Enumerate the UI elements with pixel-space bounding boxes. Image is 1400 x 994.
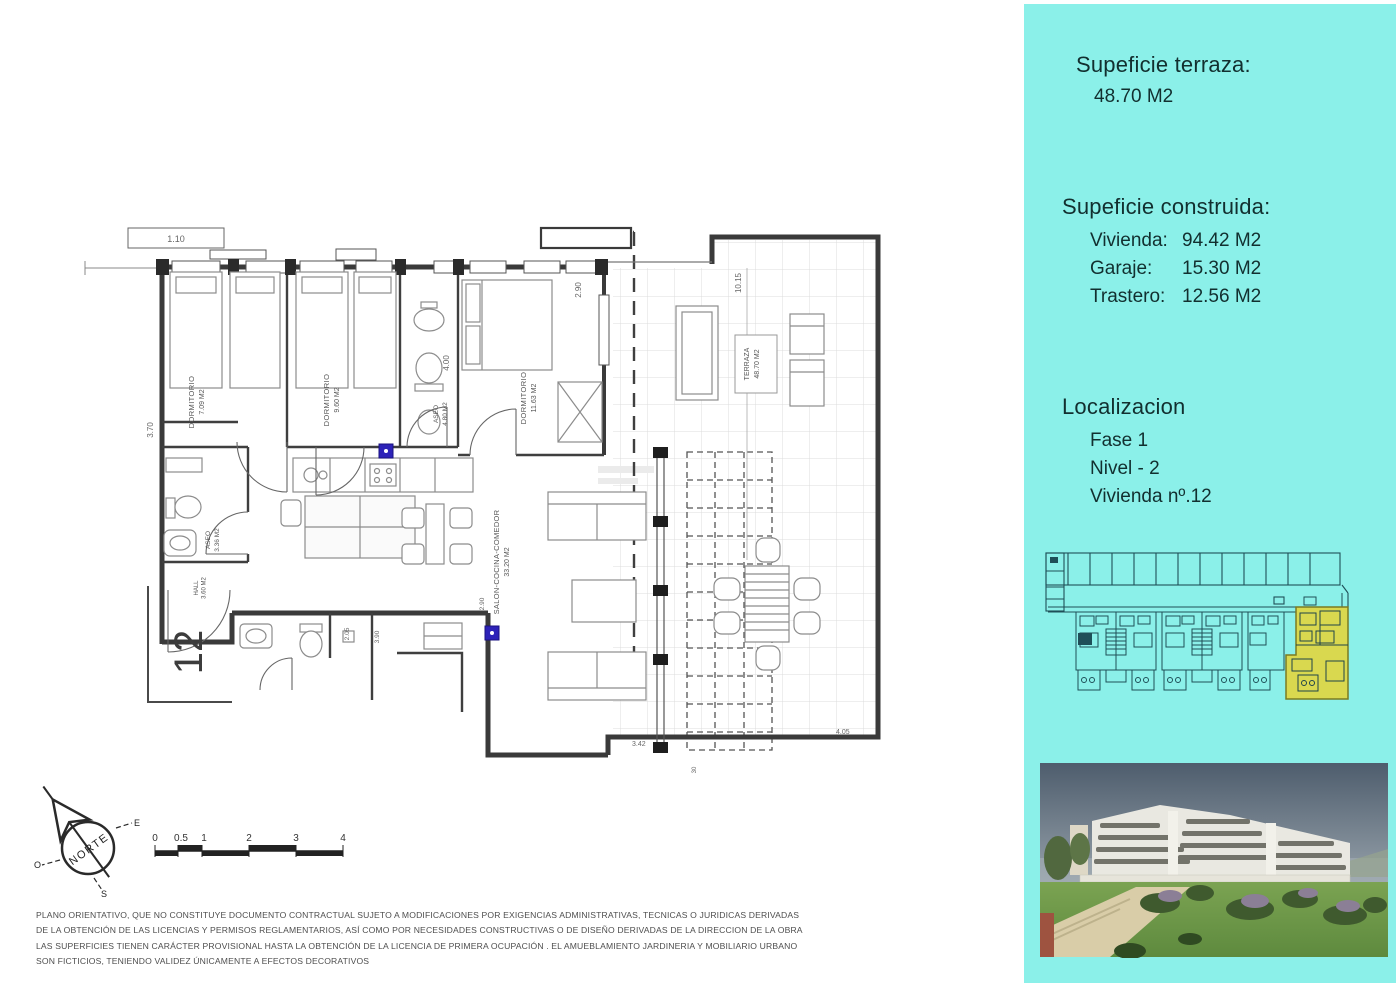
built-label: Trastero: [1090, 286, 1182, 308]
svg-text:SALON-COCINA-COMEDOR: SALON-COCINA-COMEDOR [492, 509, 501, 614]
svg-text:11.63 M2: 11.63 M2 [531, 384, 538, 413]
room-label-salon: SALON-COCINA-COMEDOR 33.20 M2 [492, 509, 511, 614]
scale-tick-3: 3 [293, 833, 299, 844]
compass-east-label: E [134, 818, 140, 828]
photo-planter [1040, 913, 1054, 957]
photo-tree [1044, 836, 1072, 880]
svg-text:DORMITORIO: DORMITORIO [187, 376, 196, 429]
location-vivienda: Vivienda nº.12 [1090, 486, 1212, 508]
built-label: Vivienda: [1090, 230, 1182, 252]
dim-left: 3.70 [146, 422, 155, 438]
dim-master: 2.90 [574, 282, 583, 298]
unit-number-label: 12 [167, 630, 211, 675]
compass-west-label: O [34, 860, 41, 870]
disclaimer-line-1: PLANO ORIENTATIVO, QUE NO CONSTITUYE DOC… [36, 908, 706, 923]
scale-tick-05: 0.5 [174, 833, 188, 844]
scale-tick-4: 4 [340, 833, 346, 844]
highlighted-unit [1286, 607, 1348, 699]
svg-text:DORMITORIO: DORMITORIO [322, 374, 331, 427]
svg-text:3.36 M2: 3.36 M2 [214, 528, 221, 552]
dim-strip-b: 3.90 [374, 630, 381, 643]
dim-tiny: 30 [692, 766, 698, 773]
room-label-bath: ASEO 4.80 M2 [433, 402, 449, 426]
svg-text:7.09 M2: 7.09 M2 [199, 389, 206, 414]
location-nivel: Nivel - 2 [1090, 458, 1160, 480]
svg-text:9.60 M2: 9.60 M2 [334, 387, 341, 412]
built-value: 94.42 M2 [1182, 230, 1261, 252]
scale-tick-2: 2 [246, 833, 252, 844]
svg-text:HALL: HALL [194, 580, 200, 596]
room-label-hall: HALL 3.60 M2 [194, 577, 208, 599]
svg-text:TERRAZA: TERRAZA [744, 347, 751, 380]
svg-text:33.20 M2: 33.20 M2 [504, 547, 511, 576]
floor-plan-drawing: 1.10 3.70 4.00 2.90 10.15 2.05 3.90 2.90… [0, 0, 1020, 989]
terrace-surface-title: Supeficie terraza: [1076, 52, 1251, 78]
built-row-vivienda: Vivienda: 94.42 M2 [1090, 230, 1261, 252]
location-title: Localizacion [1062, 394, 1185, 420]
dim-terrace-height: 10.15 [734, 272, 743, 293]
scale-bar: 0 0.5 1 2 3 4 [152, 833, 346, 857]
dim-strip-a: 2.05 [344, 627, 351, 640]
north-compass: NORTE E S O [25, 773, 140, 899]
built-surface-title: Supeficie construida: [1062, 194, 1270, 220]
disclaimer-line-3: LAS SUPERFICIES TIENEN CARÁCTER PROVISIO… [36, 939, 706, 954]
scale-tick-1: 1 [201, 833, 207, 844]
location-fase: Fase 1 [1090, 430, 1148, 452]
room-label-dormitorio-3: DORMITORIO 11.63 M2 [519, 372, 538, 425]
compass-north-label: NORTE [67, 831, 111, 868]
info-sidebar: Supeficie terraza: 48.70 M2 Supeficie co… [1024, 4, 1396, 983]
floor-plan-area: 1.10 3.70 4.00 2.90 10.15 2.05 3.90 2.90… [0, 0, 1020, 989]
disclaimer-text: PLANO ORIENTATIVO, QUE NO CONSTITUYE DOC… [36, 908, 706, 970]
compass-south-label: S [101, 889, 107, 899]
disclaimer-line-4: SON FICTICIOS, TENIENDO VALIDEZ ÚNICAMEN… [36, 954, 706, 969]
built-row-garaje: Garaje: 15.30 M2 [1090, 258, 1261, 280]
disclaimer-line-2: DE LA OBTENCIÓN DE LAS LICENCIAS Y PERMI… [36, 923, 706, 938]
floorplan-page: { "panel": { "terrace": {"title": "Supef… [0, 0, 1400, 989]
dim-living-door: 2.90 [479, 597, 486, 610]
built-value: 12.56 M2 [1182, 286, 1261, 308]
svg-text:12: 12 [167, 630, 211, 675]
svg-text:DORMITORIO: DORMITORIO [519, 372, 528, 425]
svg-text:ASEO: ASEO [433, 405, 440, 423]
built-value: 15.30 M2 [1182, 258, 1261, 280]
dim-bottom-right: 3.42 [632, 741, 646, 748]
site-plan [1042, 549, 1364, 713]
built-label: Garaje: [1090, 258, 1182, 280]
svg-text:4.80 M2: 4.80 M2 [442, 402, 449, 426]
building-photo [1040, 762, 1388, 958]
terrace-surface-value: 48.70 M2 [1094, 86, 1173, 108]
dim-top-left: 1.10 [167, 234, 185, 244]
scale-tick-0: 0 [152, 833, 158, 844]
dim-terrace-bottom: 4.05 [836, 729, 850, 736]
dim-bath: 4.00 [442, 355, 451, 371]
built-row-trastero: Trastero: 12.56 M2 [1090, 286, 1261, 308]
photo-fence [1080, 875, 1350, 882]
svg-text:48.70 M2: 48.70 M2 [754, 349, 761, 378]
svg-text:3.60 M2: 3.60 M2 [202, 577, 208, 599]
svg-text:ASEO: ASEO [205, 531, 212, 549]
